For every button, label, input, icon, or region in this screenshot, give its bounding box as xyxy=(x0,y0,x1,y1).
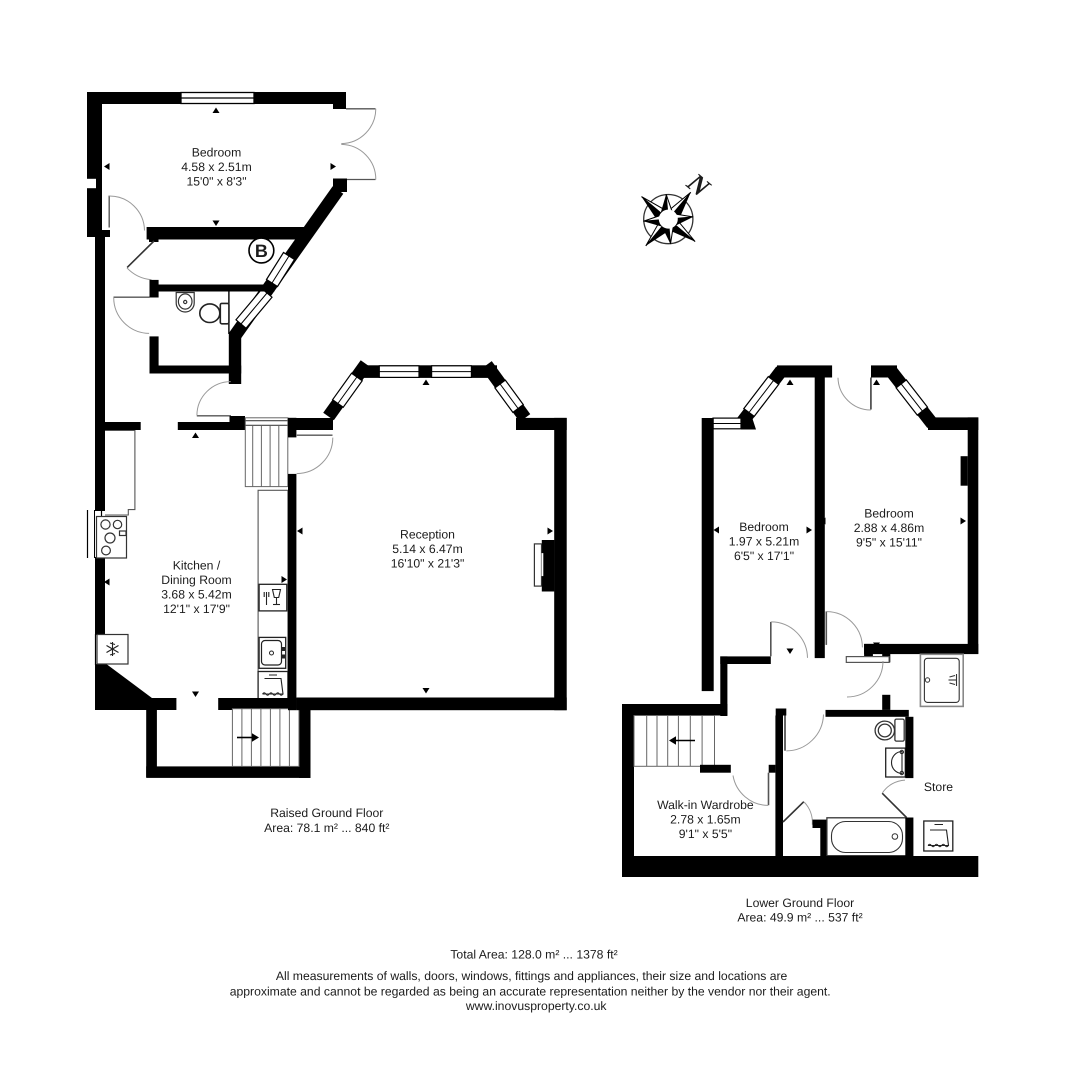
svg-text:2.78 x 1.65m: 2.78 x 1.65m xyxy=(670,813,740,827)
svg-text:12'1" x 17'9": 12'1" x 17'9" xyxy=(163,602,230,616)
svg-text:15'0" x 8'3": 15'0" x 8'3" xyxy=(186,175,246,189)
svg-text:Lower Ground Floor: Lower Ground Floor xyxy=(746,896,854,910)
svg-text:Total Area: 128.0 m² ... 1378: Total Area: 128.0 m² ... 1378 ft² xyxy=(450,948,617,962)
svg-text:Reception: Reception xyxy=(400,528,455,542)
svg-text:1.97 x 5.21m: 1.97 x 5.21m xyxy=(729,535,799,549)
svg-text:Area: 49.9 m² ... 537 ft²: Area: 49.9 m² ... 537 ft² xyxy=(737,911,862,925)
svg-text:approximate and cannot be rega: approximate and cannot be regarded as be… xyxy=(230,985,831,999)
svg-text:6'5" x 17'1": 6'5" x 17'1" xyxy=(734,549,794,563)
svg-text:Area: 78.1 m² ... 840 ft²: Area: 78.1 m² ... 840 ft² xyxy=(264,821,389,835)
svg-text:9'1" x 5'5": 9'1" x 5'5" xyxy=(679,827,732,841)
svg-text:2.88 x 4.86m: 2.88 x 4.86m xyxy=(854,521,924,535)
svg-text:16'10" x 21'3": 16'10" x 21'3" xyxy=(391,557,465,571)
svg-text:Kitchen /: Kitchen / xyxy=(173,559,221,573)
svg-text:Dining Room: Dining Room xyxy=(161,573,231,587)
svg-text:Store: Store xyxy=(924,780,953,794)
svg-text:Bedroom: Bedroom xyxy=(739,520,788,534)
svg-text:All measurements of walls, doo: All measurements of walls, doors, window… xyxy=(276,969,788,983)
svg-text:9'5" x 15'11": 9'5" x 15'11" xyxy=(856,536,922,550)
svg-text:3.68 x 5.42m: 3.68 x 5.42m xyxy=(161,588,231,602)
svg-text:Bedroom: Bedroom xyxy=(864,507,913,521)
svg-text:www.inovusproperty.co.uk: www.inovusproperty.co.uk xyxy=(465,999,608,1013)
svg-text:Raised Ground Floor: Raised Ground Floor xyxy=(270,806,383,820)
svg-text:4.58 x 2.51m: 4.58 x 2.51m xyxy=(181,160,251,174)
svg-text:5.14 x 6.47m: 5.14 x 6.47m xyxy=(392,542,462,556)
svg-text:Bedroom: Bedroom xyxy=(192,146,241,160)
svg-text:B: B xyxy=(255,241,268,261)
svg-text:Walk-in Wardrobe: Walk-in Wardrobe xyxy=(657,798,754,812)
